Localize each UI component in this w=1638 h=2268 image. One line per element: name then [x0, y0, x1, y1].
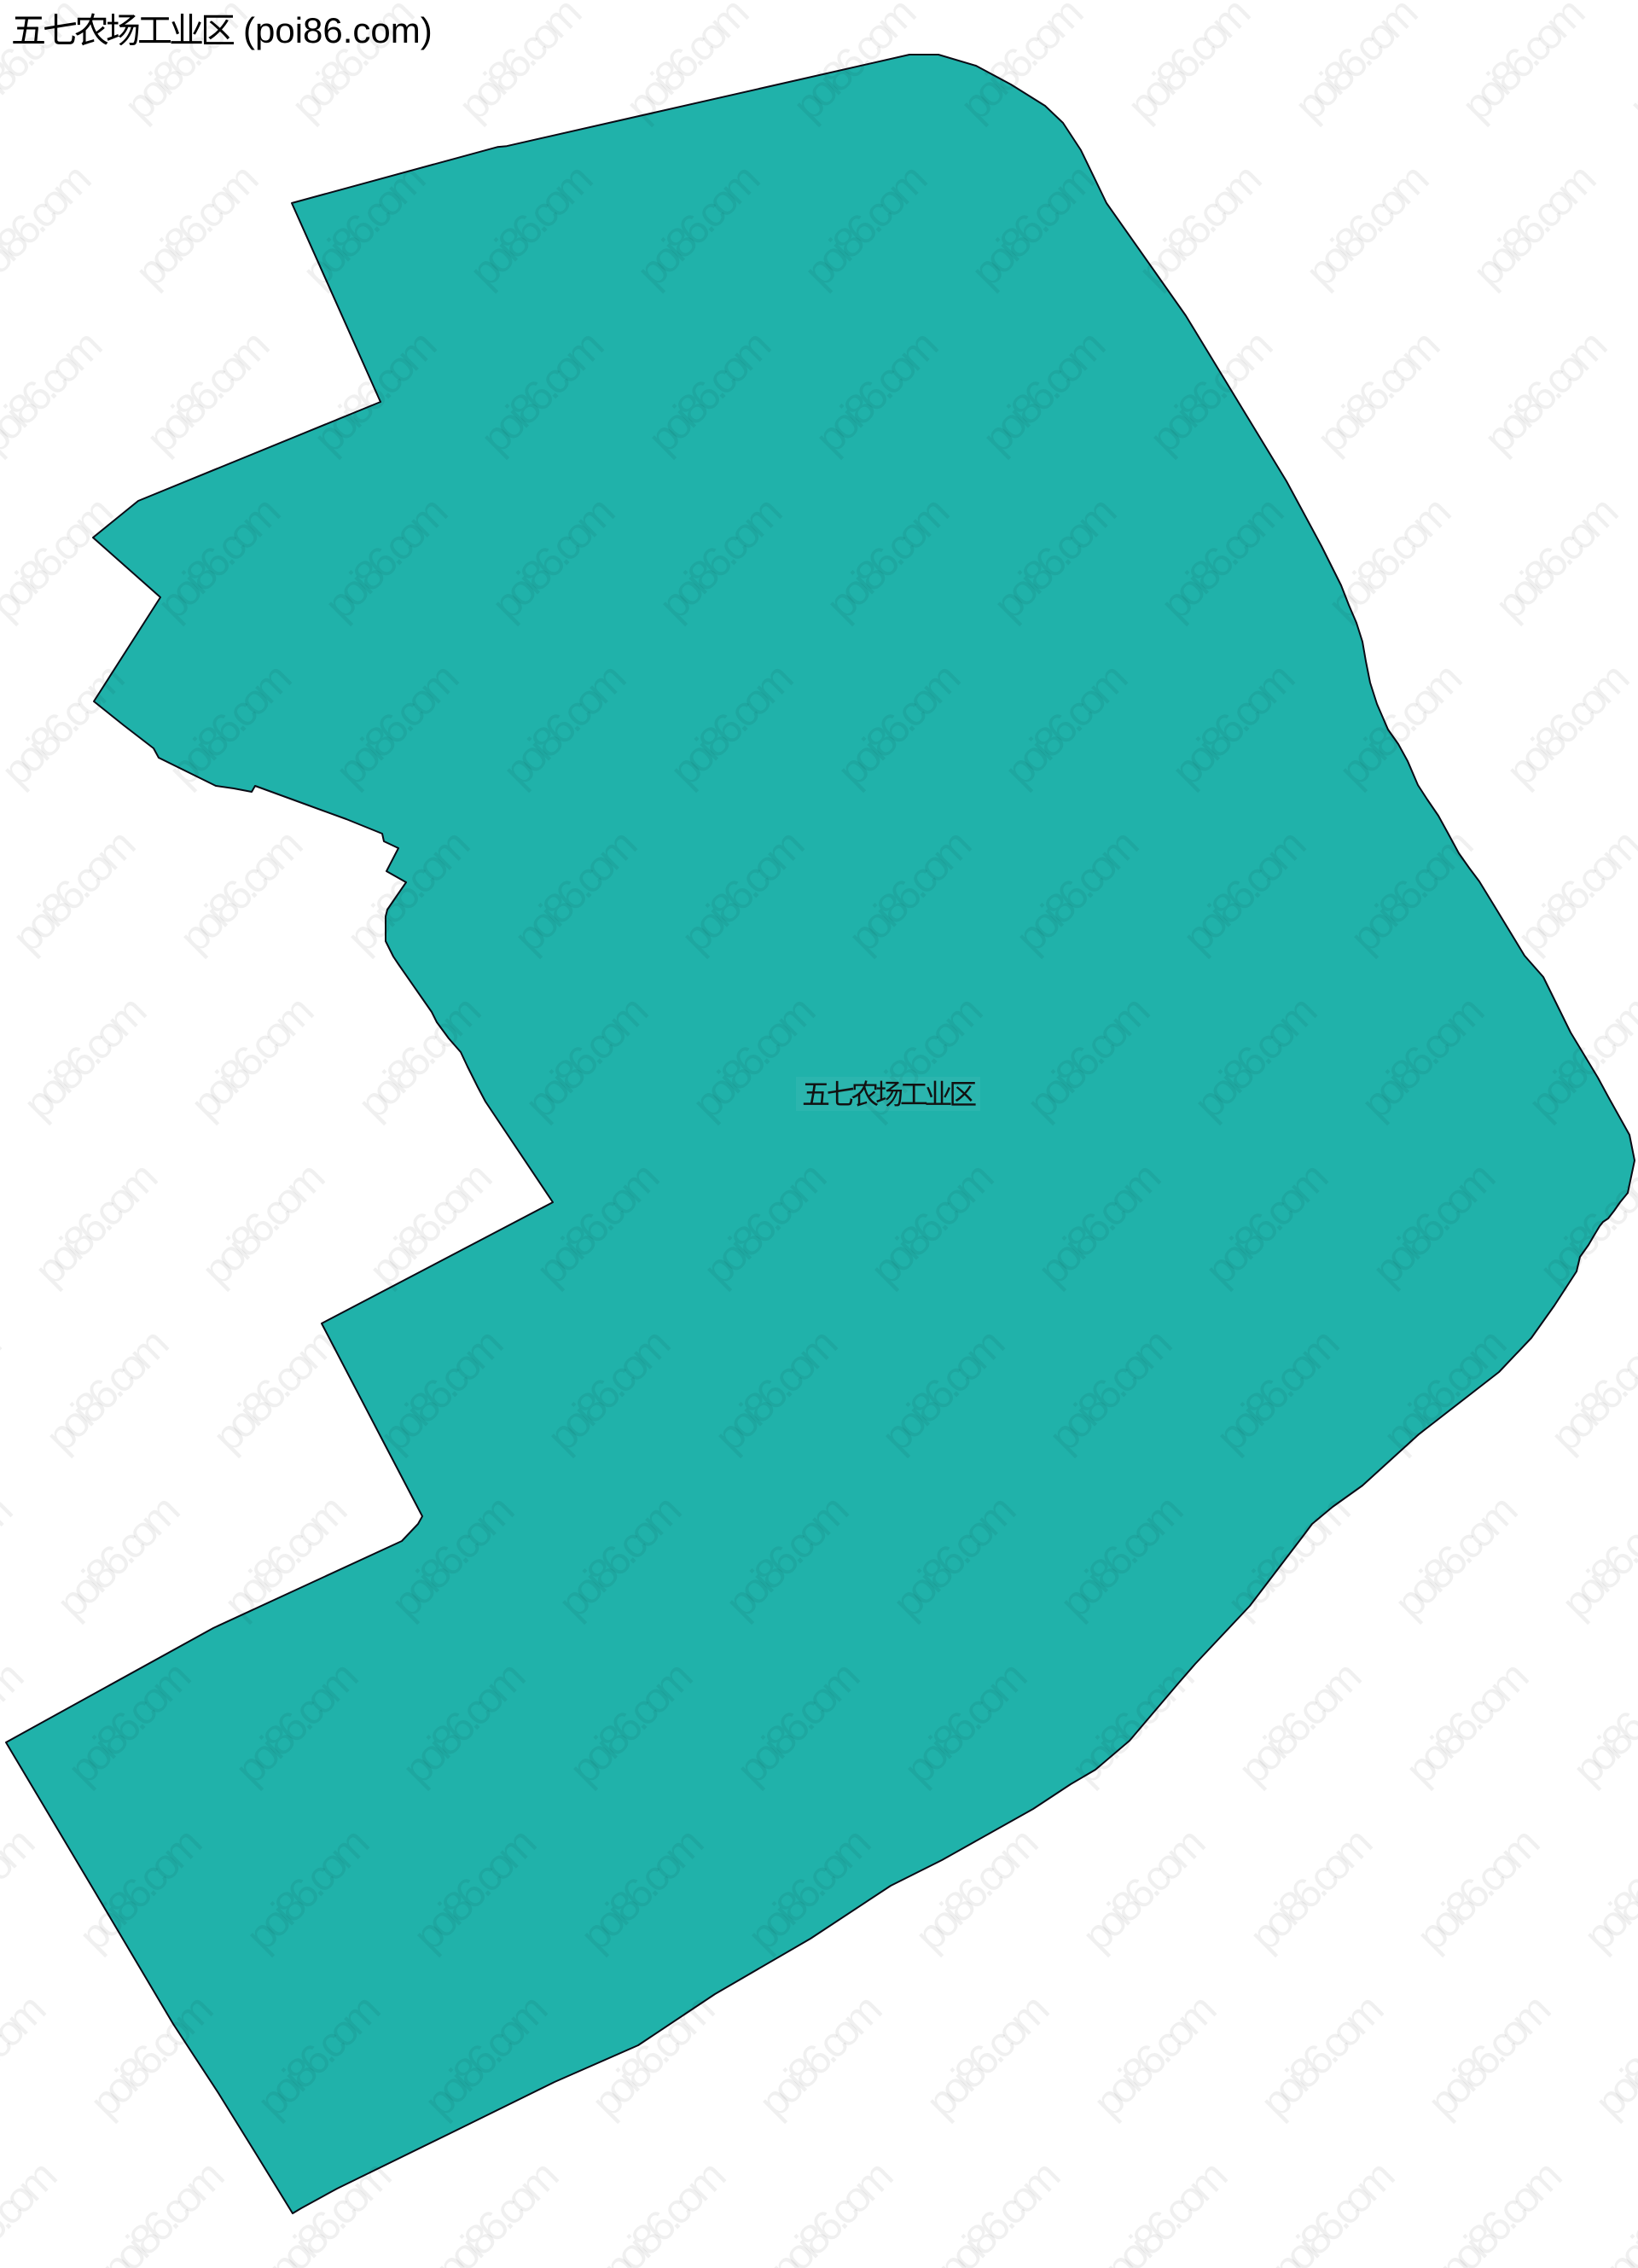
svg-text:(poi86.com): (poi86.com) — [243, 10, 433, 50]
